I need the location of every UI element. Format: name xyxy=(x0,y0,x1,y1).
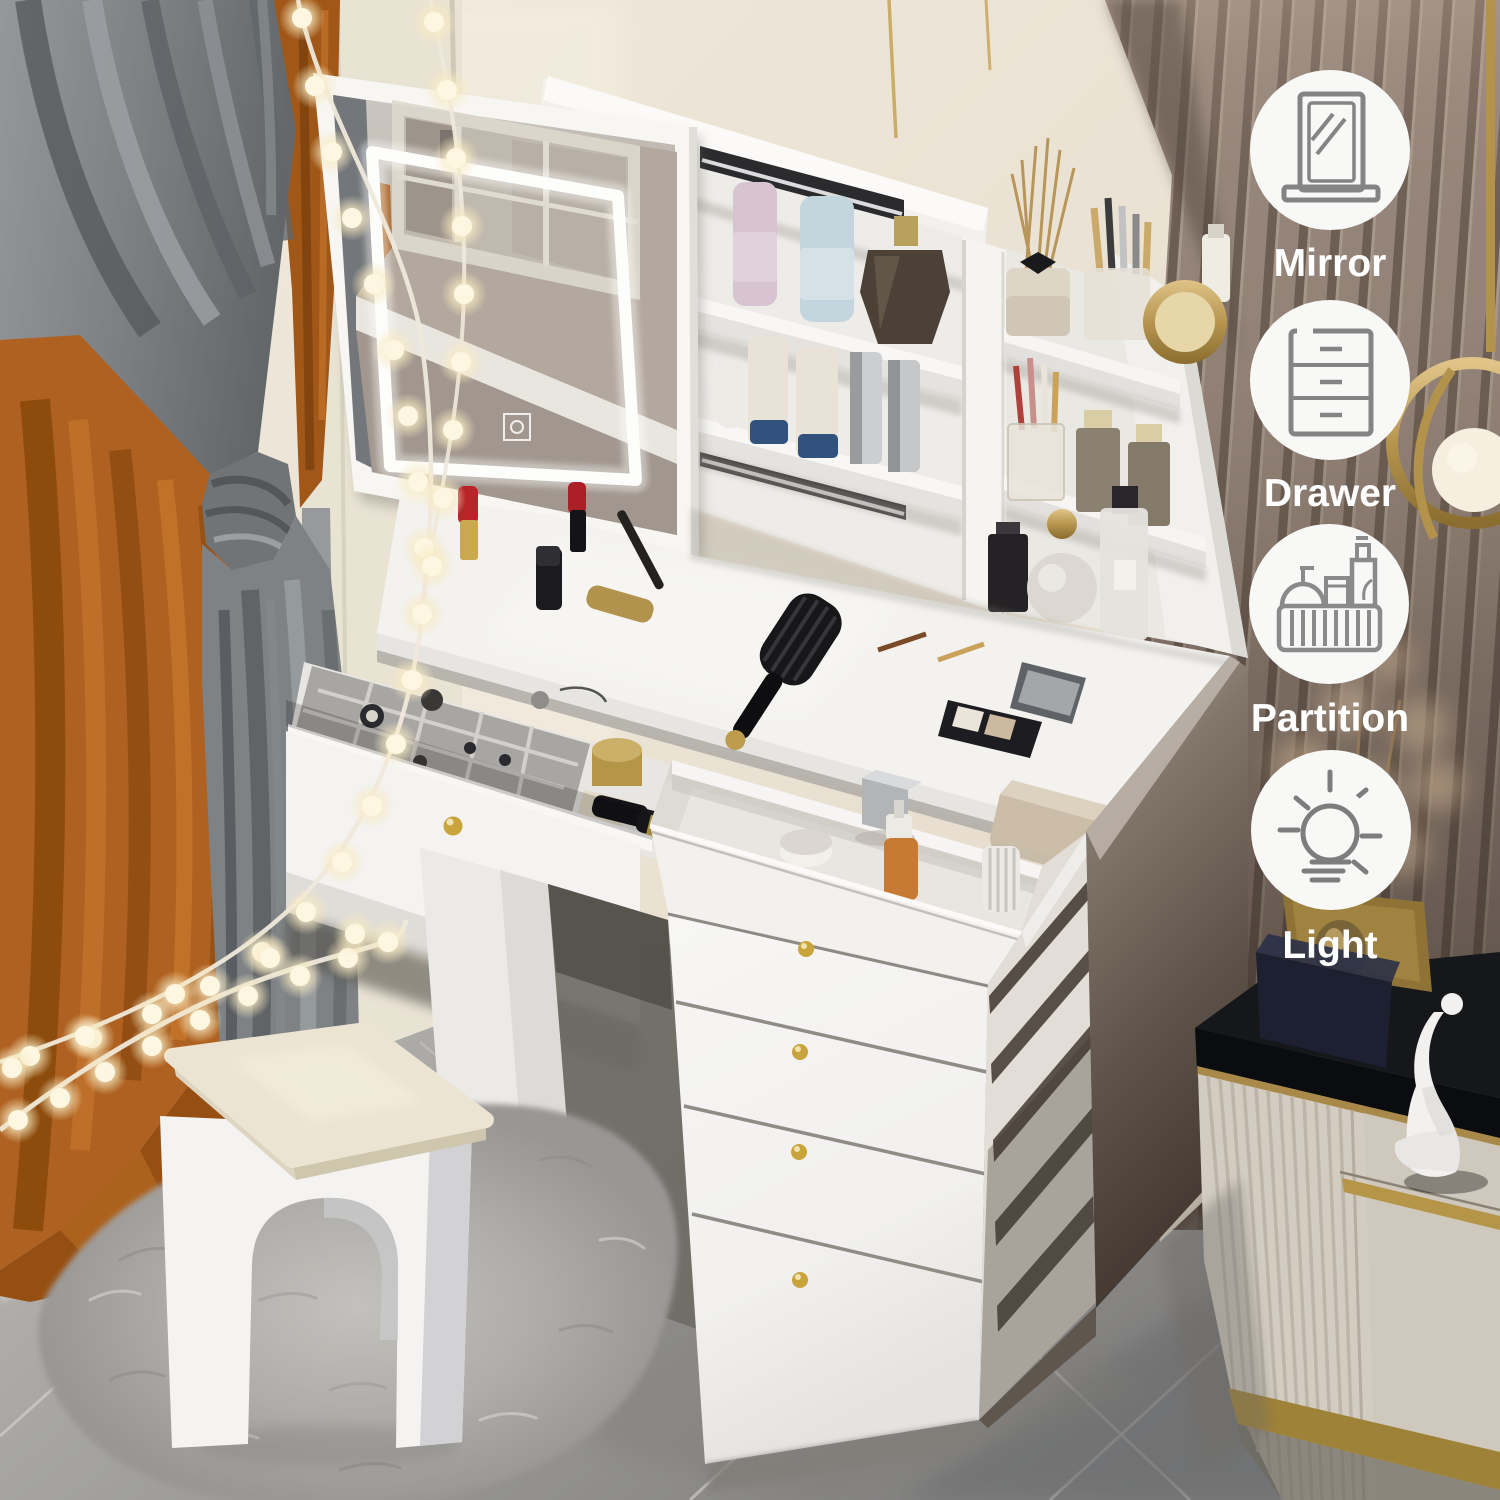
svg-text:Drawer: Drawer xyxy=(1264,472,1396,515)
svg-text:Light: Light xyxy=(1282,924,1377,967)
svg-text:Mirror: Mirror xyxy=(1274,242,1387,285)
svg-text:Partition: Partition xyxy=(1251,697,1409,740)
